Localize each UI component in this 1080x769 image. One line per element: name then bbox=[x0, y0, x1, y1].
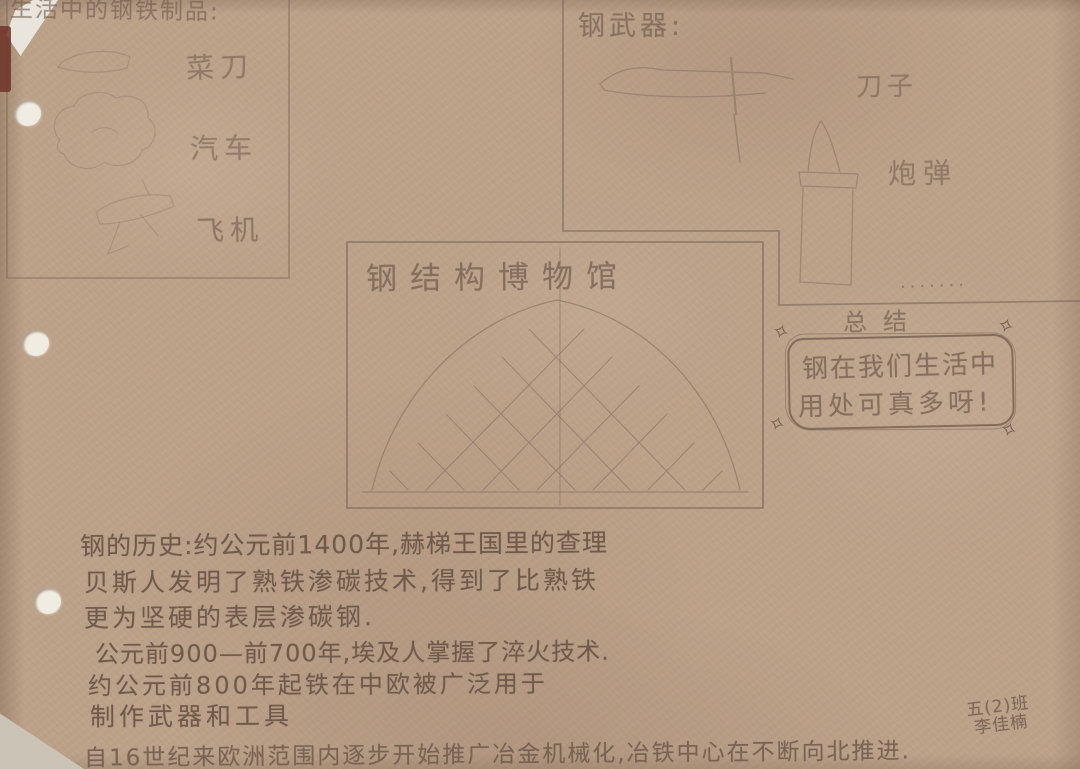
history-line-7: 自16世纪来欧洲范围内逐步开始推广冶金机械化,冶铁中心在不断向北推进. bbox=[84, 731, 911, 769]
history-line-3: 更为坚硬的表层渗碳钢. bbox=[84, 597, 375, 635]
label-car: 汽车 bbox=[190, 126, 259, 167]
history-line-1: 钢的历史:约公元前1400年,赫梯王国里的查理 bbox=[80, 523, 608, 563]
shell-sketch bbox=[799, 121, 858, 285]
airplane-sketch bbox=[96, 180, 174, 254]
weapons-box bbox=[563, 0, 1080, 305]
label-artillery-shell: 炮弹 bbox=[888, 151, 959, 192]
history-line-5: 约公元前800年起铁在中欧被广泛用于 bbox=[88, 664, 548, 701]
weapons-title: 钢武器: bbox=[578, 4, 684, 43]
punch-hole-middle bbox=[22, 330, 49, 356]
museum-title: 钢结构博物馆 bbox=[366, 251, 630, 299]
weapons-ellipsis: ······· bbox=[900, 275, 969, 298]
sword-sketch bbox=[600, 58, 793, 162]
punch-hole-bottom bbox=[34, 588, 61, 614]
history-line-6: 制作武器和工具 bbox=[90, 696, 293, 733]
summary-line-2: 用处可真多呀! bbox=[798, 381, 993, 423]
daily-items-title: 生活中的钢铁制品: bbox=[10, 0, 220, 26]
car-sketch bbox=[54, 92, 155, 168]
kraft-paper-page: 生活中的钢铁制品: 菜刀 汽车 飞机 钢武器: 刀子 炮弹 ······· 钢结… bbox=[0, 0, 1080, 769]
knife-sketch bbox=[58, 51, 130, 72]
summary-line-1: 钢在我们生活中 bbox=[802, 343, 999, 385]
label-knife: 刀子 bbox=[856, 65, 919, 103]
left-edge-tape bbox=[0, 26, 11, 92]
dome-crosshatch-sketch bbox=[372, 300, 740, 490]
punch-hole-top bbox=[14, 100, 41, 126]
label-airplane: 飞机 bbox=[196, 208, 265, 249]
label-kitchen-knife: 菜刀 bbox=[185, 45, 254, 87]
history-line-2: 贝斯人发明了熟铁渗碳技术,得到了比熟铁 bbox=[84, 561, 599, 600]
